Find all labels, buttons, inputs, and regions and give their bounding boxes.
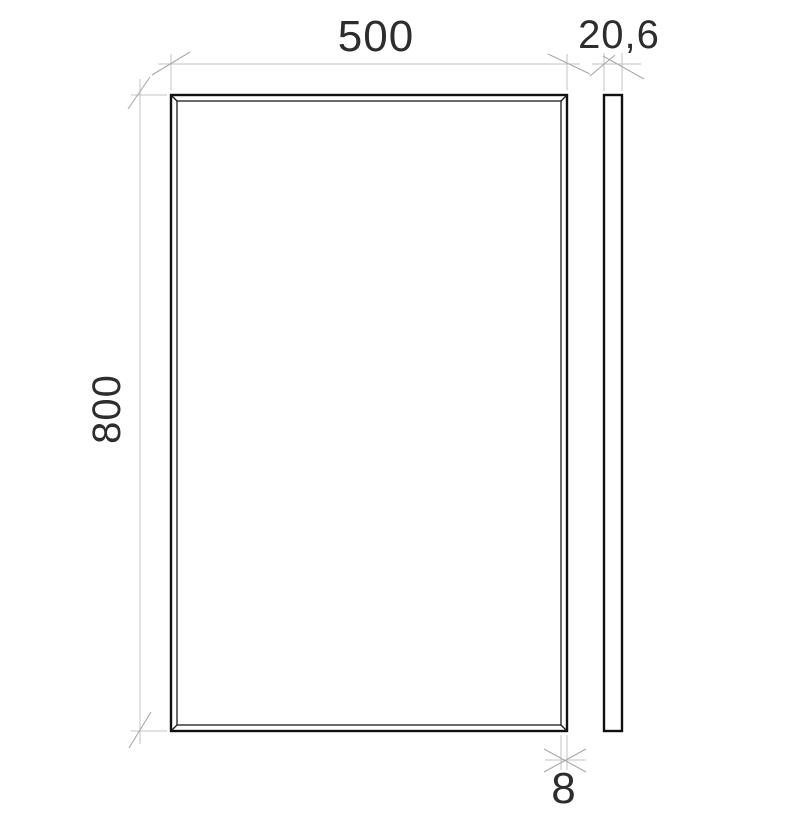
front-view-outer-outline bbox=[171, 95, 567, 731]
height-dimension bbox=[128, 77, 167, 748]
bevel-dimension-label: 8 bbox=[551, 764, 576, 813]
bevel-inner-outline bbox=[177, 101, 561, 725]
dimension-tick bbox=[603, 56, 644, 79]
width-dimension-label: 500 bbox=[338, 12, 414, 61]
dimension-tick bbox=[590, 55, 615, 76]
side-view-outline bbox=[604, 95, 622, 731]
side-view bbox=[604, 95, 622, 731]
dimension-tick bbox=[128, 77, 150, 109]
technical-drawing-canvas: 500 20,6 800 8 bbox=[0, 0, 800, 818]
height-dimension-label: 800 bbox=[85, 374, 129, 444]
front-view bbox=[171, 95, 567, 731]
thickness-dimension bbox=[590, 53, 644, 91]
thickness-dimension-label: 20,6 bbox=[578, 13, 660, 57]
dimension-drawing: 500 20,6 800 8 bbox=[0, 0, 800, 818]
